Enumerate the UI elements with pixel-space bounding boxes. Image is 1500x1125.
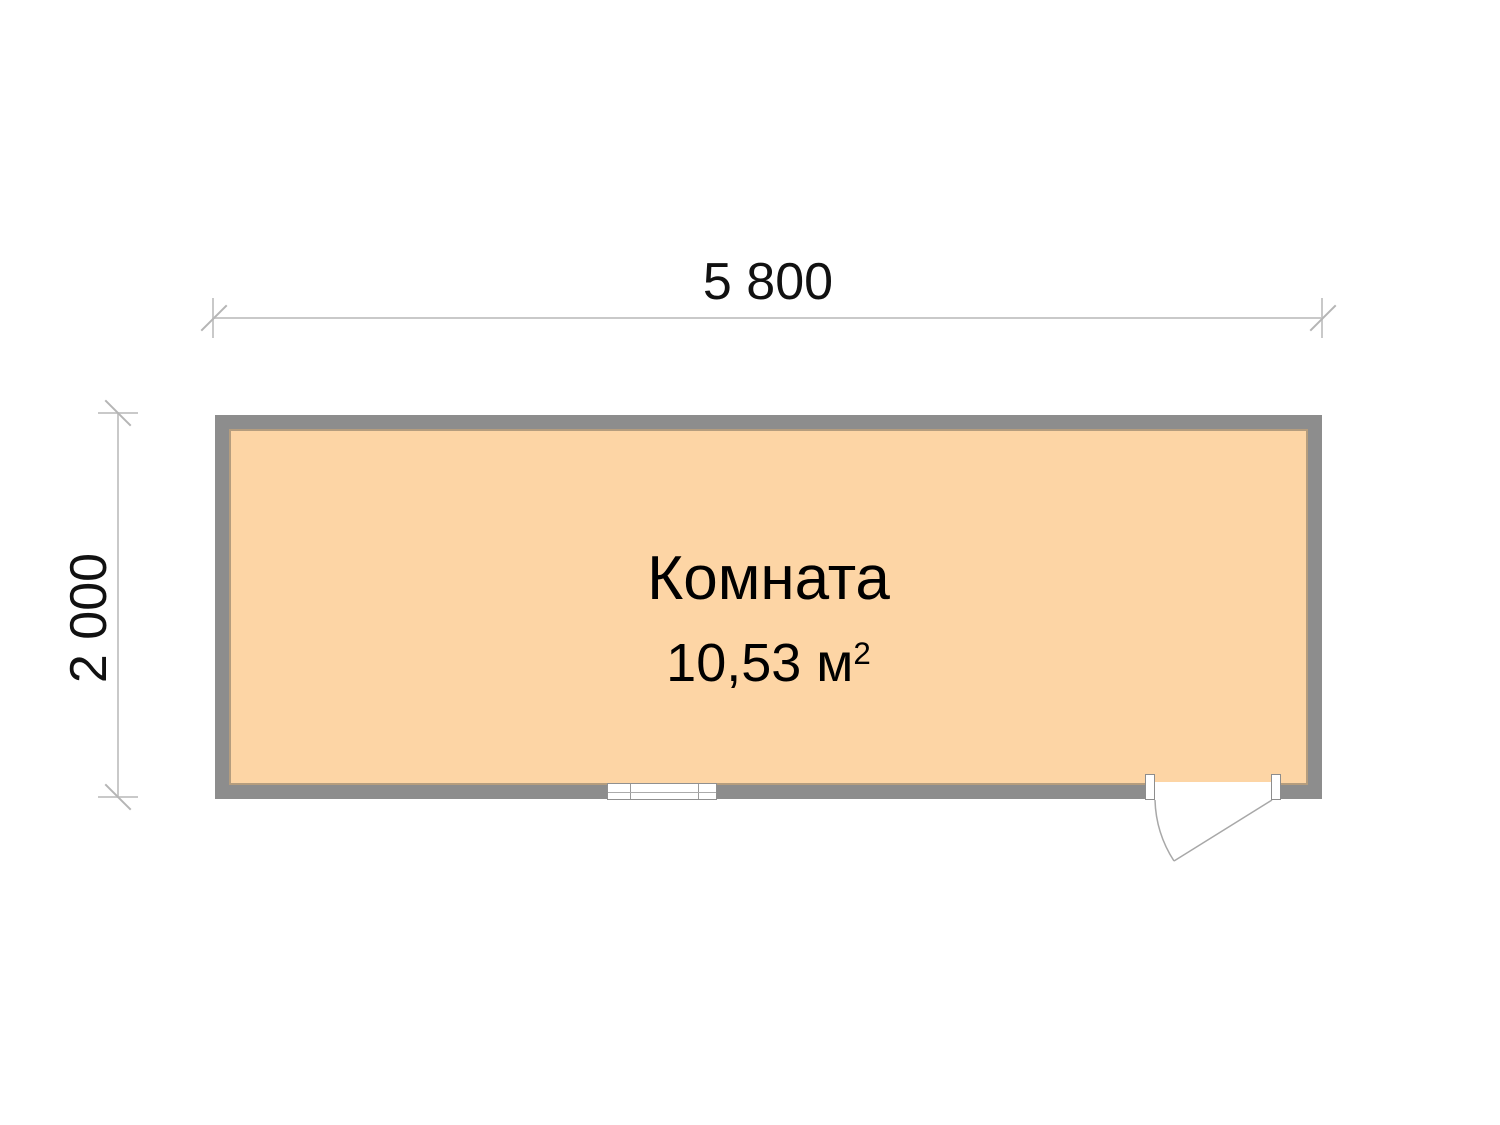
room-area-superscript: 2	[853, 636, 870, 671]
door-opening	[1154, 782, 1272, 800]
floor-plan: 5 800 2 000 Комната 10,53 м2	[0, 0, 1500, 1125]
height-dimension-label-wrap: 2 000	[59, 458, 119, 778]
width-dimension-label: 5 800	[213, 256, 1323, 308]
width-dimension-line	[213, 317, 1323, 319]
height-dimension-label: 2 000	[63, 553, 115, 683]
door-jamb-left	[1145, 774, 1155, 800]
room-area-label: 10,53 м2	[229, 636, 1308, 690]
room-area-value: 10,53 м	[666, 633, 853, 693]
window	[607, 783, 717, 800]
door-swing-arc	[1155, 800, 1174, 861]
door-jamb-right	[1271, 774, 1281, 800]
room-name-label: Комната	[229, 548, 1308, 610]
window-glass-line	[608, 792, 716, 793]
door-leaf	[1174, 800, 1272, 861]
